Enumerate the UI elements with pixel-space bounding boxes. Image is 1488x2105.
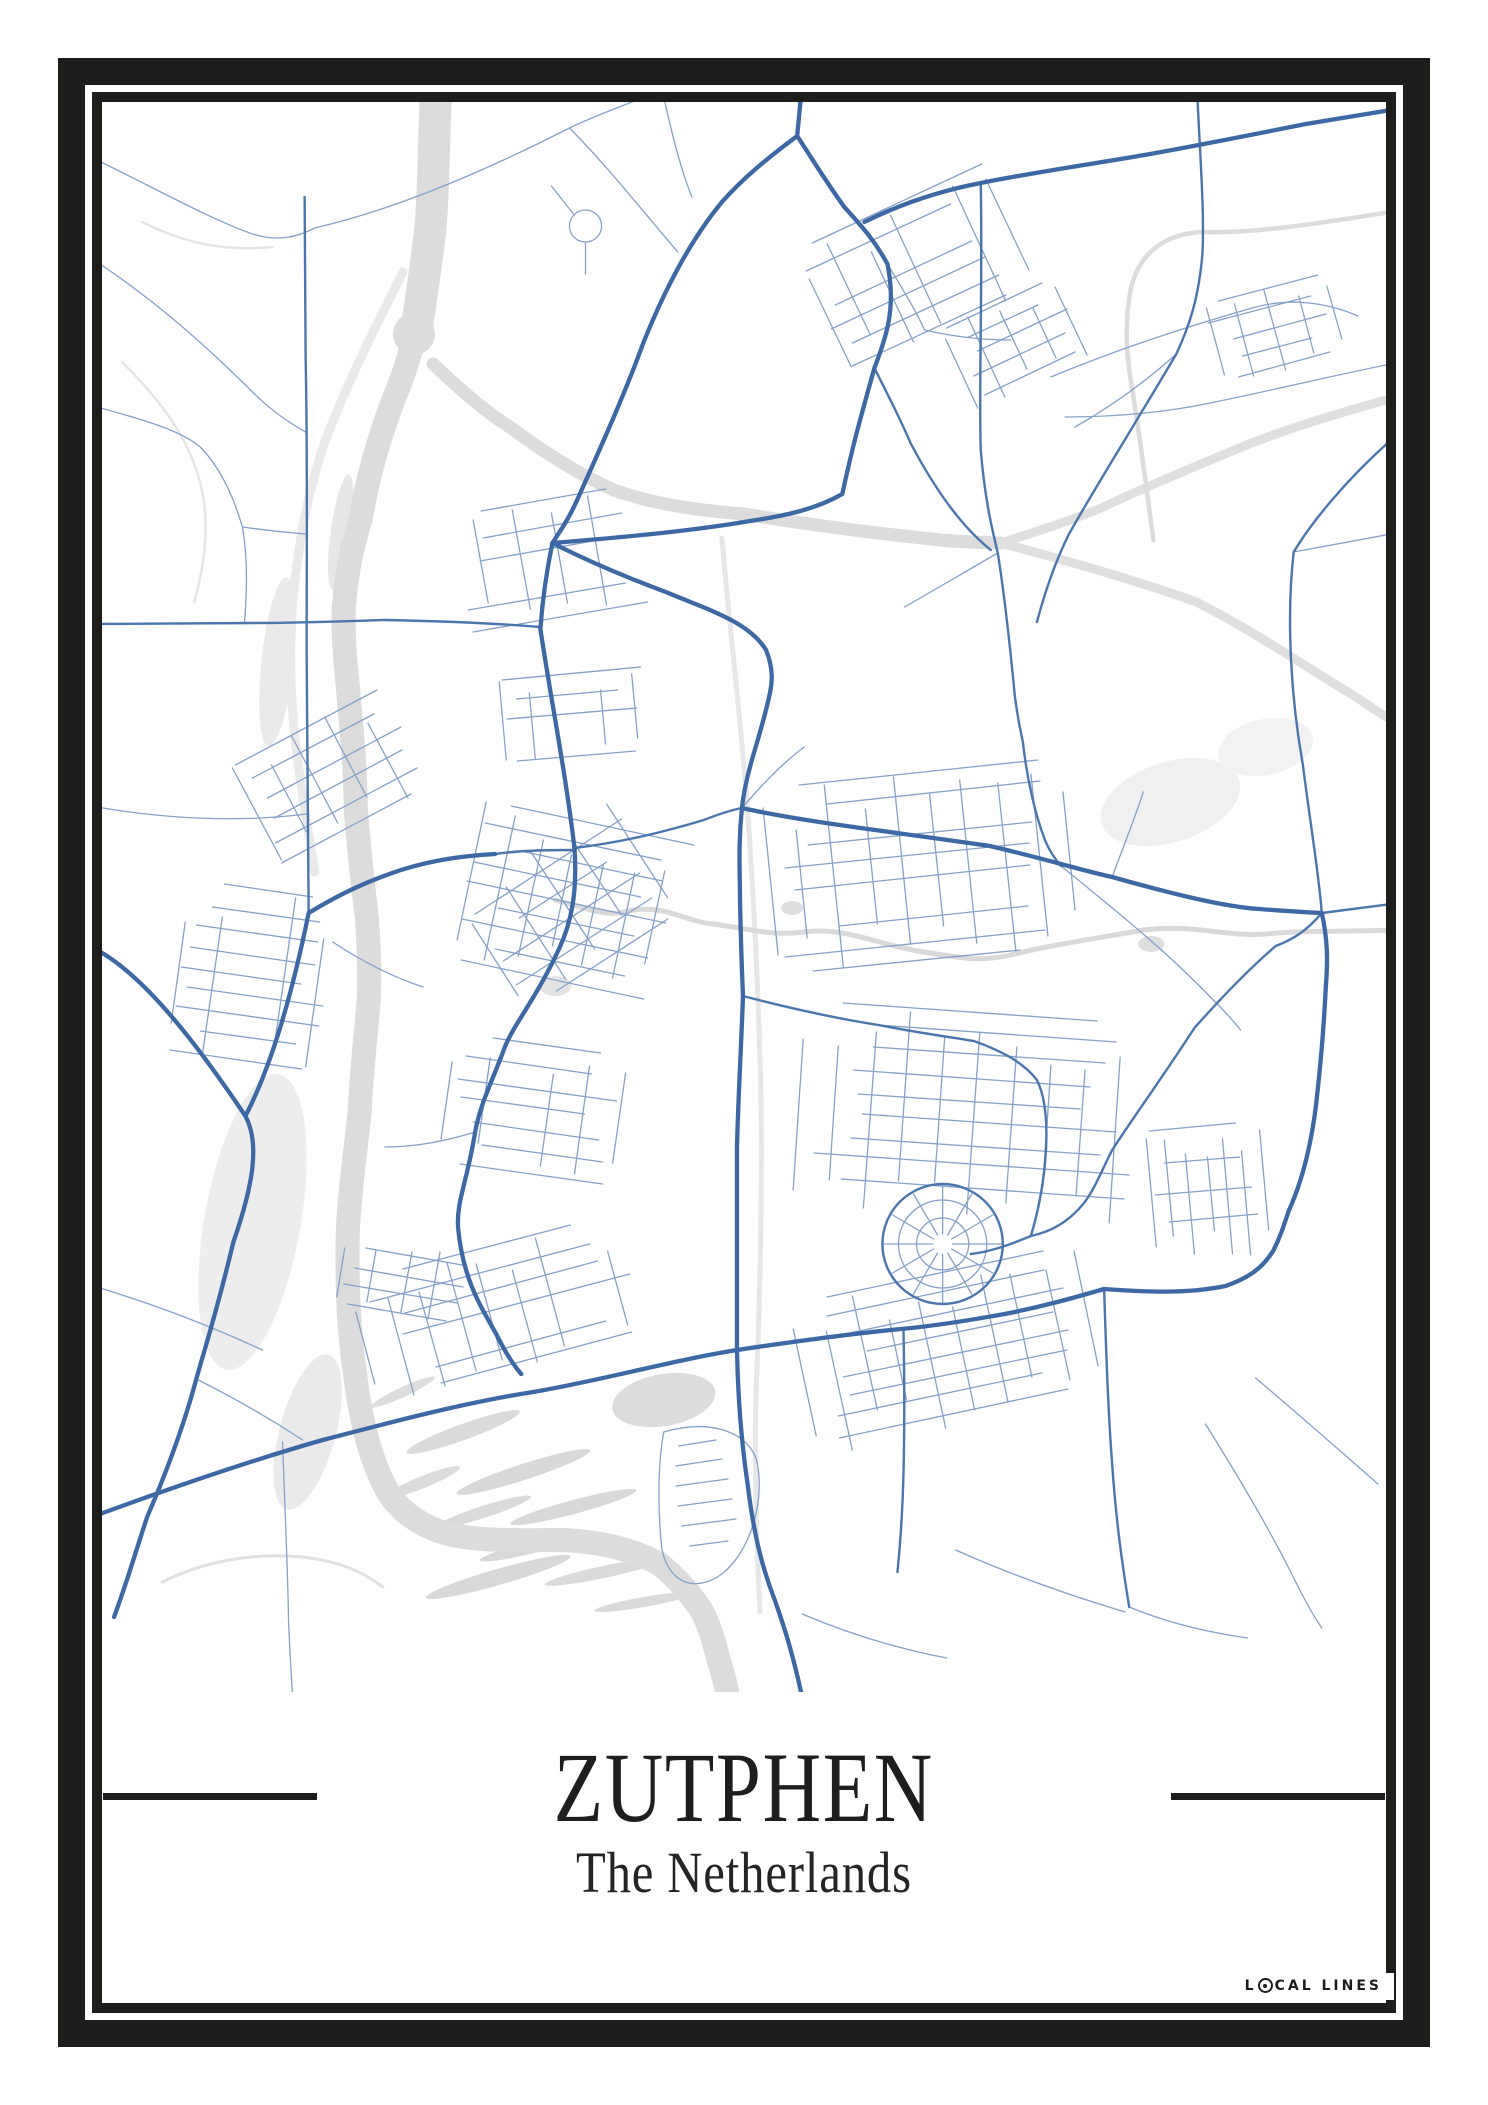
city-title: ZUTPHEN bbox=[0, 1738, 1488, 1838]
country-subtitle: The Netherlands bbox=[0, 1840, 1488, 1907]
country-subtitle-text: The Netherlands bbox=[576, 1840, 912, 1907]
brand-logo: L CAL LINES bbox=[1233, 1973, 1394, 2000]
brand-text-post: CAL LINES bbox=[1275, 1979, 1382, 1993]
city-title-text: ZUTPHEN bbox=[554, 1738, 934, 1838]
brand-text-pre: L bbox=[1245, 1979, 1257, 1993]
poster: ZUTPHEN The Netherlands L CAL LINES bbox=[0, 0, 1488, 2105]
city-street-map bbox=[102, 102, 1386, 1692]
map-area bbox=[102, 102, 1386, 1692]
brand-location-o-icon bbox=[1258, 1978, 1273, 1993]
